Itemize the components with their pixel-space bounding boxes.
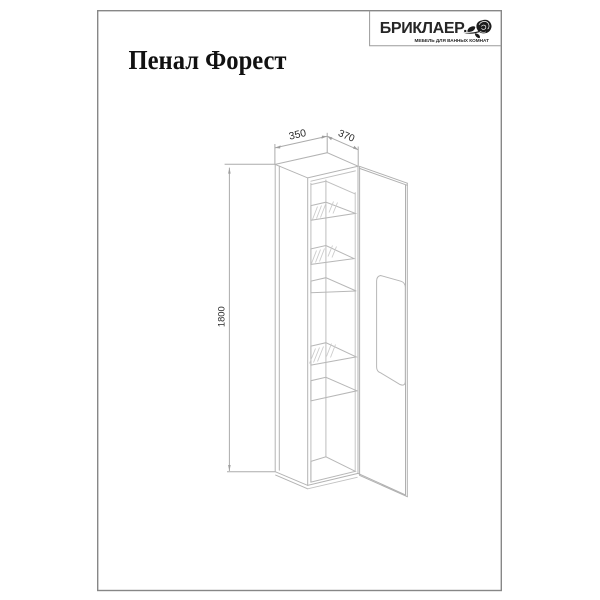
svg-text:Пенал Форест: Пенал Форест (129, 44, 287, 75)
svg-text:МЕБЕЛЬ ДЛЯ ВАННЫХ КОМНАТ: МЕБЕЛЬ ДЛЯ ВАННЫХ КОМНАТ (415, 38, 490, 44)
svg-text:1800: 1800 (215, 306, 226, 327)
svg-text:БРИКЛАЕР: БРИКЛАЕР (380, 20, 466, 37)
